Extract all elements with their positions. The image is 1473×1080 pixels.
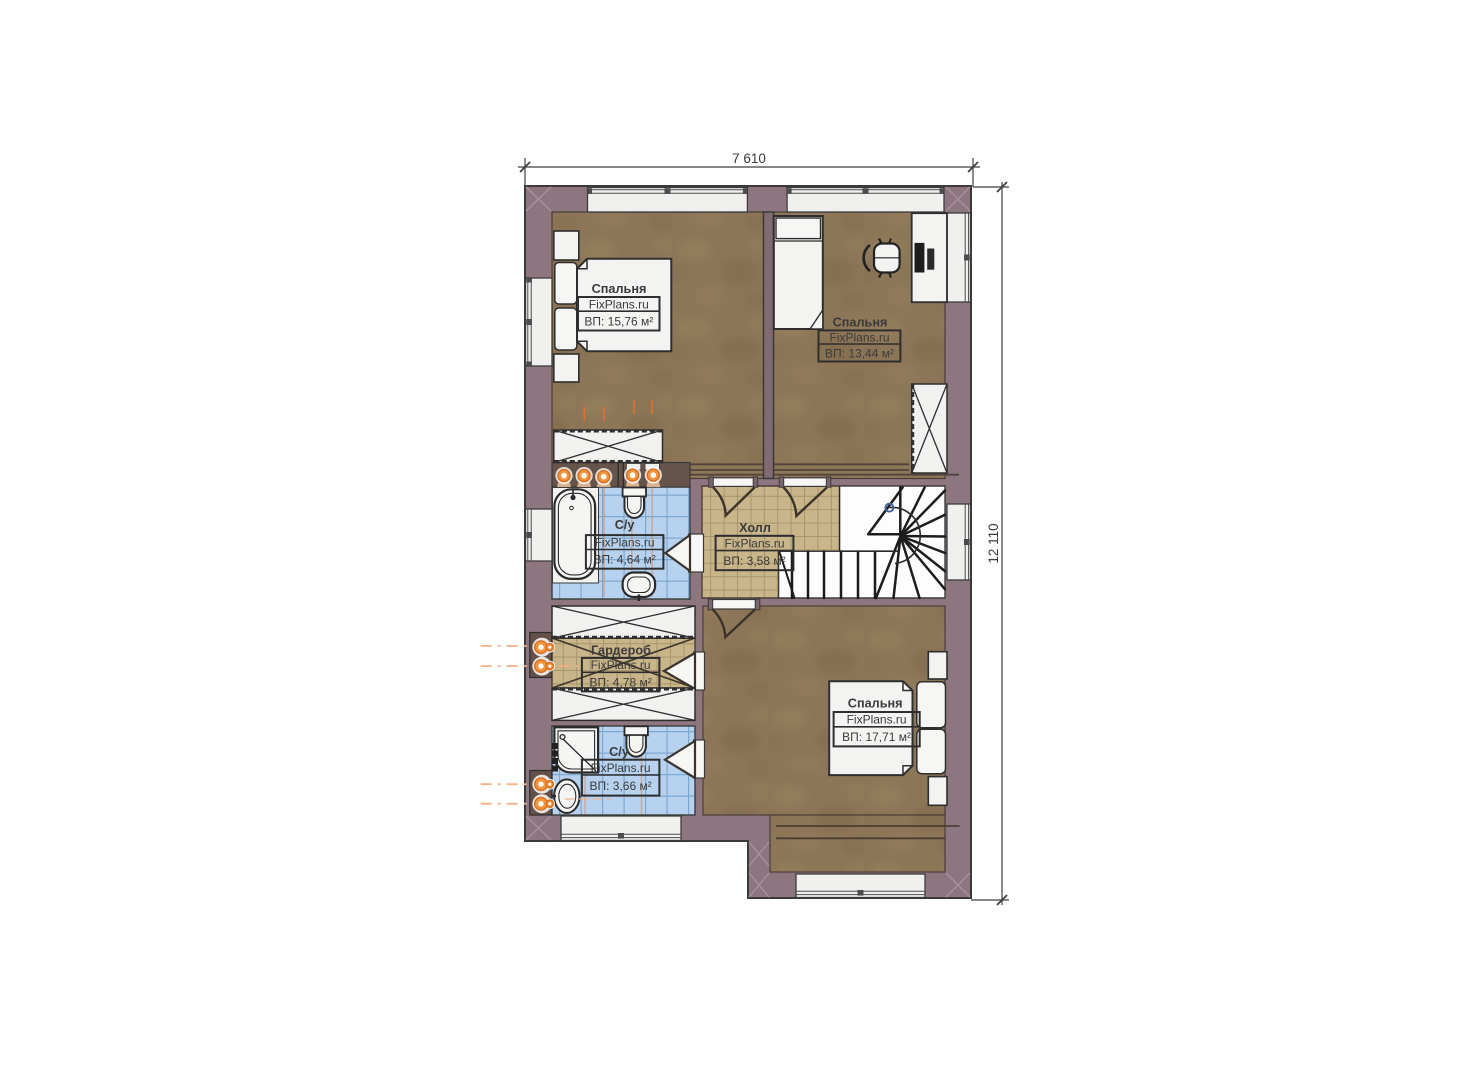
svg-text:Гардероб: Гардероб bbox=[591, 643, 651, 657]
svg-text:Спальня: Спальня bbox=[592, 282, 647, 296]
svg-text:Спальня: Спальня bbox=[848, 696, 903, 710]
svg-text:FixPlans.ru: FixPlans.ru bbox=[591, 761, 651, 775]
svg-text:ВП: 3,58 м²: ВП: 3,58 м² bbox=[723, 554, 785, 568]
svg-text:ВП: 4,78 м²: ВП: 4,78 м² bbox=[589, 675, 651, 689]
svg-text:FixPlans.ru: FixPlans.ru bbox=[847, 713, 907, 727]
svg-text:7 610: 7 610 bbox=[732, 151, 766, 166]
svg-text:FixPlans.ru: FixPlans.ru bbox=[591, 658, 651, 672]
svg-text:ВП: 17,71 м²: ВП: 17,71 м² bbox=[842, 730, 911, 744]
svg-text:FixPlans.ru: FixPlans.ru bbox=[589, 297, 649, 311]
svg-text:FixPlans.ru: FixPlans.ru bbox=[724, 536, 784, 550]
svg-text:С/у: С/у bbox=[615, 518, 635, 532]
svg-text:Холл: Холл bbox=[739, 521, 771, 535]
svg-text:FixPlans.ru: FixPlans.ru bbox=[595, 535, 655, 549]
svg-text:ВП: 4,64 м²: ВП: 4,64 м² bbox=[593, 553, 655, 567]
svg-text:С/у: С/у bbox=[609, 745, 629, 759]
svg-text:FixPlans.ru: FixPlans.ru bbox=[829, 330, 889, 344]
svg-text:12 110: 12 110 bbox=[986, 523, 1001, 563]
svg-text:Спальня: Спальня bbox=[833, 316, 888, 330]
svg-text:ВП: 3,66 м²: ВП: 3,66 м² bbox=[589, 779, 651, 793]
svg-text:ВП: 13,44 м²: ВП: 13,44 м² bbox=[825, 346, 894, 360]
svg-text:ВП: 15,76 м²: ВП: 15,76 м² bbox=[584, 314, 653, 328]
